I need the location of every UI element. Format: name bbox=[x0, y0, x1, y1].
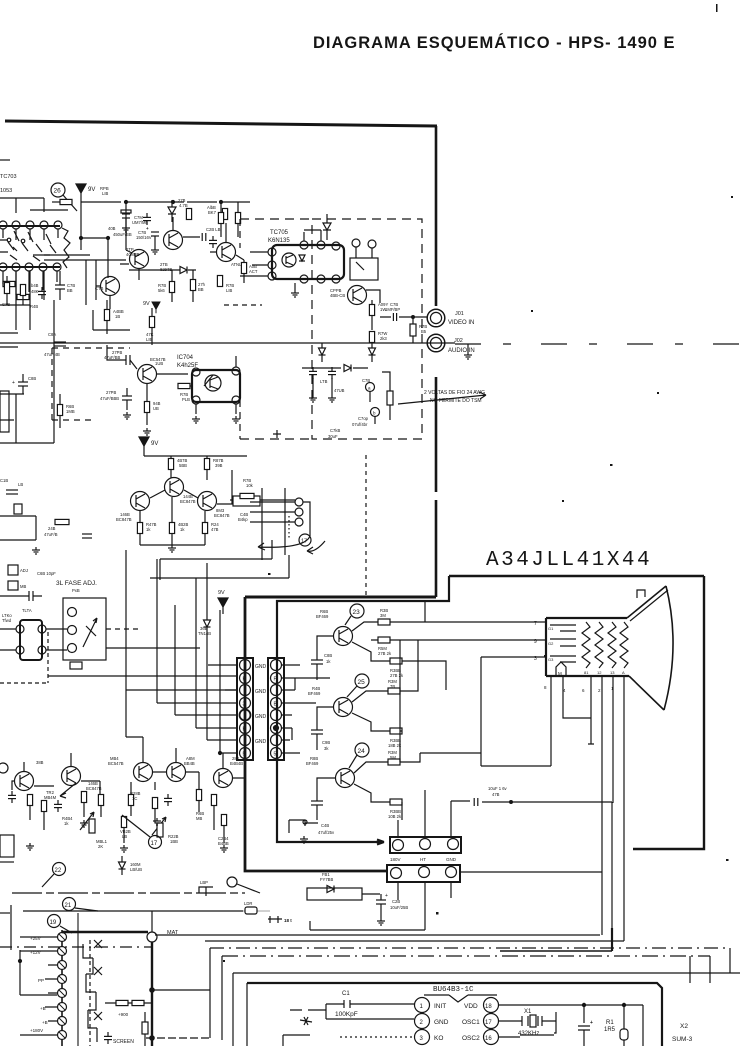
svg-text:C1: C1 bbox=[342, 991, 350, 997]
svg-text:B5: B5 bbox=[421, 329, 427, 334]
svg-text:C8B: C8B bbox=[28, 376, 36, 381]
svg-text:BC547B: BC547B bbox=[150, 357, 166, 362]
svg-text:C7kB: C7kB bbox=[330, 428, 340, 433]
svg-text:GND: GND bbox=[255, 714, 267, 720]
svg-text:38B: 38B bbox=[36, 760, 44, 765]
svg-text:SCREEN: SCREEN bbox=[113, 1039, 134, 1045]
svg-text:27B 2k: 27B 2k bbox=[378, 651, 392, 656]
svg-text:1C: 1C bbox=[132, 796, 137, 801]
svg-text:PxB: PxB bbox=[72, 588, 80, 593]
svg-text:2: 2 bbox=[420, 1020, 424, 1026]
svg-text:16: 16 bbox=[485, 1036, 492, 1042]
svg-text:48K: 48K bbox=[31, 289, 39, 294]
svg-text:1k: 1k bbox=[326, 659, 331, 664]
svg-text:IC704: IC704 bbox=[177, 355, 194, 361]
svg-text:PP: PP bbox=[38, 978, 44, 983]
svg-text:OSC2: OSC2 bbox=[462, 1035, 480, 1042]
svg-text:9V: 9V bbox=[143, 301, 150, 307]
svg-text:07uf/4br: 07uf/4br bbox=[352, 422, 368, 427]
svg-text:2K: 2K bbox=[98, 844, 103, 849]
svg-text:OSC1: OSC1 bbox=[462, 1019, 480, 1026]
svg-text:7B: 7B bbox=[390, 684, 395, 689]
svg-text:ADJ: ADJ bbox=[20, 568, 28, 573]
svg-text:GND: GND bbox=[446, 857, 457, 862]
svg-text:10k: 10k bbox=[246, 483, 254, 488]
svg-text:BF469: BF469 bbox=[316, 614, 329, 619]
svg-text:+B: +B bbox=[42, 1020, 48, 1025]
svg-text:BK7: BK7 bbox=[208, 210, 217, 215]
svg-text:24B: 24B bbox=[48, 526, 56, 531]
svg-text:1R5: 1R5 bbox=[604, 1027, 616, 1033]
svg-text:MAT: MAT bbox=[167, 930, 179, 936]
svg-text:G1: G1 bbox=[548, 626, 554, 631]
svg-text:BC547B: BC547B bbox=[108, 761, 124, 766]
svg-text:X2: X2 bbox=[680, 1023, 688, 1030]
svg-text:K6N135: K6N135 bbox=[268, 238, 290, 244]
svg-text:3: 3 bbox=[420, 1036, 424, 1042]
svg-text:AUDIO IN: AUDIO IN bbox=[448, 348, 475, 354]
svg-text:47uF/B: 47uF/B bbox=[44, 532, 58, 537]
svg-text:17: 17 bbox=[485, 1020, 492, 1026]
svg-text:30uF: 30uF bbox=[328, 434, 338, 439]
svg-text:ACT: ACT bbox=[249, 269, 258, 274]
svg-text:150/16V: 150/16V bbox=[136, 235, 152, 240]
svg-text:1MB: 1MB bbox=[66, 409, 75, 414]
svg-text:UM7/Mh: UM7/Mh bbox=[132, 220, 148, 225]
svg-text:GND: GND bbox=[434, 1019, 449, 1026]
svg-text:NO FERMITE DO TSM: NO FERMITE DO TSM bbox=[430, 398, 482, 404]
svg-text:C7B: C7B bbox=[362, 378, 370, 383]
svg-text:b: b bbox=[373, 411, 376, 416]
svg-text:1k: 1k bbox=[180, 527, 185, 532]
svg-text:UB: UB bbox=[153, 406, 159, 411]
svg-text:13: 13 bbox=[610, 670, 615, 675]
svg-text:VIDEO IN: VIDEO IN bbox=[448, 320, 474, 326]
svg-text:27PB: 27PB bbox=[106, 390, 116, 395]
svg-text:9V: 9V bbox=[218, 590, 225, 596]
svg-text:5M: 5M bbox=[390, 755, 396, 760]
svg-text:LB: LB bbox=[122, 834, 127, 839]
svg-text:1BB: 1BB bbox=[170, 839, 178, 844]
svg-text:KO: KO bbox=[434, 1035, 443, 1042]
svg-text:A34JLL41X44: A34JLL41X44 bbox=[486, 549, 652, 572]
svg-text:18: 18 bbox=[485, 1004, 492, 1010]
svg-text:A: A bbox=[622, 670, 625, 675]
svg-text:25: 25 bbox=[358, 679, 366, 686]
svg-text:BC847B: BC847B bbox=[214, 513, 230, 518]
svg-text:B4B4B: B4B4B bbox=[230, 761, 243, 766]
svg-text:1MF/BP: 1MF/BP bbox=[385, 307, 400, 312]
svg-text:Tfwd: Tfwd bbox=[2, 618, 12, 623]
svg-text:LTB: LTB bbox=[320, 379, 328, 384]
svg-text:3k: 3k bbox=[324, 746, 329, 751]
svg-text:+: + bbox=[146, 226, 149, 231]
svg-text:12: 12 bbox=[597, 670, 602, 675]
svg-text:450uF/BB: 450uF/BB bbox=[113, 232, 132, 237]
svg-text:INIT: INIT bbox=[434, 1003, 446, 1010]
svg-text:LB/UB: LB/UB bbox=[130, 867, 142, 872]
svg-text:9V: 9V bbox=[88, 187, 95, 193]
svg-text:1: 1 bbox=[420, 1004, 424, 1010]
svg-text:C8A: C8A bbox=[48, 332, 56, 337]
svg-text:C2B: C2B bbox=[392, 899, 400, 904]
svg-text:27B 2k: 27B 2k bbox=[390, 673, 404, 678]
svg-text:GND: GND bbox=[255, 689, 267, 695]
svg-text:5: 5 bbox=[243, 752, 246, 758]
svg-text:G3: G3 bbox=[548, 657, 554, 662]
svg-text:TC705: TC705 bbox=[270, 230, 289, 236]
svg-text:1053: 1053 bbox=[0, 188, 12, 194]
svg-text:+180V: +180V bbox=[30, 1028, 43, 1033]
svg-text:10uF 1 6v: 10uF 1 6v bbox=[488, 786, 508, 791]
svg-text:MB: MB bbox=[20, 584, 26, 589]
svg-text:BB: BB bbox=[67, 288, 73, 293]
svg-text:3: 3 bbox=[243, 702, 246, 708]
svg-text:R: R bbox=[243, 677, 247, 683]
svg-text:BF469: BF469 bbox=[308, 691, 321, 696]
svg-text:J02: J02 bbox=[454, 338, 463, 344]
svg-text:G2: G2 bbox=[548, 641, 554, 646]
svg-text:R1: R1 bbox=[606, 1020, 614, 1026]
svg-text:8: 8 bbox=[544, 685, 547, 690]
svg-text:BC847B: BC847B bbox=[116, 517, 132, 522]
svg-text:BF469: BF469 bbox=[306, 761, 319, 766]
svg-text:3M: 3M bbox=[380, 613, 386, 618]
svg-text:VDD: VDD bbox=[464, 1003, 478, 1010]
svg-text:BC847B: BC847B bbox=[180, 499, 196, 504]
svg-text:47UB: 47UB bbox=[334, 388, 345, 393]
svg-text:17: 17 bbox=[151, 841, 158, 847]
svg-text:2k3: 2k3 bbox=[380, 336, 387, 341]
svg-text:21: 21 bbox=[65, 903, 72, 909]
svg-text:2 VOLTAS DE FIO 24 AWG: 2 VOLTAS DE FIO 24 AWG bbox=[424, 390, 485, 396]
svg-text:MB: MB bbox=[196, 816, 202, 821]
svg-text:6: 6 bbox=[582, 688, 585, 693]
svg-text:DIAGRAMA ESQUEMÁTICO - HPS- 14: DIAGRAMA ESQUEMÁTICO - HPS- 1490 E bbox=[313, 33, 676, 52]
svg-text:LIB: LIB bbox=[102, 191, 108, 196]
svg-text:40B: 40B bbox=[108, 226, 116, 231]
svg-text:47uF/BBB: 47uF/BBB bbox=[100, 396, 119, 401]
svg-text:b4B: b4B bbox=[31, 283, 39, 288]
svg-text:TLTA: TLTA bbox=[22, 608, 32, 613]
svg-text:1k: 1k bbox=[146, 527, 151, 532]
svg-text:18 t: 18 t bbox=[284, 918, 292, 923]
svg-text:HT: HT bbox=[420, 857, 426, 862]
svg-text:ATNL: ATNL bbox=[231, 262, 242, 267]
svg-text:TC703: TC703 bbox=[0, 174, 17, 180]
svg-text:23: 23 bbox=[353, 609, 361, 616]
svg-text:829TB: 829TB bbox=[160, 267, 173, 272]
svg-text:39B: 39B bbox=[215, 463, 223, 468]
svg-text:2: 2 bbox=[598, 688, 601, 693]
svg-text:J01: J01 bbox=[455, 311, 464, 317]
svg-text:26: 26 bbox=[54, 188, 62, 195]
svg-text:180V: 180V bbox=[390, 857, 401, 862]
svg-text:LBP: LBP bbox=[200, 880, 208, 885]
svg-text:4.7B: 4.7B bbox=[179, 203, 188, 208]
svg-text:+B: +B bbox=[40, 1006, 46, 1011]
svg-text:5BB: 5BB bbox=[179, 463, 187, 468]
svg-text:TN14B: TN14B bbox=[198, 631, 211, 636]
svg-text:10uF/25B: 10uF/25B bbox=[390, 905, 408, 910]
svg-text:+: + bbox=[385, 893, 388, 899]
svg-text:BU64B3-1C: BU64B3-1C bbox=[433, 986, 474, 994]
svg-text:B4kp: B4kp bbox=[238, 517, 248, 522]
svg-text:PLB: PLB bbox=[182, 397, 190, 402]
svg-text:81: 81 bbox=[584, 670, 589, 675]
svg-text:10B 2k: 10B 2k bbox=[388, 814, 402, 819]
svg-text:5k6: 5k6 bbox=[158, 288, 165, 293]
svg-text:+900: +900 bbox=[118, 1012, 129, 1017]
svg-text:M: M bbox=[558, 671, 562, 676]
svg-text:C7op: C7op bbox=[358, 416, 369, 421]
svg-text:19: 19 bbox=[50, 920, 57, 926]
svg-text:+: + bbox=[12, 380, 15, 386]
svg-text:C4B: C4B bbox=[321, 823, 329, 828]
svg-text:24: 24 bbox=[358, 748, 366, 755]
svg-text:MB4M: MB4M bbox=[44, 795, 57, 800]
svg-text:C2B LB: C2B LB bbox=[206, 227, 221, 232]
svg-text:X1: X1 bbox=[524, 1009, 532, 1015]
svg-text:4C8UB: 4C8UB bbox=[126, 252, 140, 257]
svg-text:LIB: LIB bbox=[226, 288, 232, 293]
svg-text:47B: 47B bbox=[492, 792, 500, 797]
svg-text:a: a bbox=[368, 386, 371, 391]
svg-text:GND: GND bbox=[255, 664, 267, 670]
svg-text:GND: GND bbox=[255, 739, 267, 745]
svg-text:22: 22 bbox=[55, 868, 62, 874]
svg-text:FY7BB: FY7BB bbox=[320, 877, 333, 882]
svg-text:100KpF: 100KpF bbox=[335, 1011, 358, 1018]
svg-text:BB: BB bbox=[198, 287, 204, 292]
svg-text:R4B: R4B bbox=[30, 304, 38, 309]
svg-text:C1B: C1B bbox=[0, 478, 8, 483]
svg-text:4BB-CB: 4BB-CB bbox=[330, 293, 345, 298]
svg-text:LB: LB bbox=[18, 482, 23, 487]
svg-text:C9B: C9B bbox=[322, 740, 330, 745]
svg-text:9V: 9V bbox=[151, 441, 158, 447]
svg-text:47uf/25v: 47uf/25v bbox=[318, 830, 335, 835]
svg-text:SUM-3: SUM-3 bbox=[672, 1036, 693, 1043]
svg-text:1B: 1B bbox=[115, 314, 120, 319]
svg-text:BB4B: BB4B bbox=[184, 761, 195, 766]
svg-text:1k: 1k bbox=[64, 821, 69, 826]
svg-text:LDR: LDR bbox=[244, 901, 252, 906]
svg-text:47B: 47B bbox=[211, 527, 219, 532]
svg-text:C8B: C8B bbox=[324, 653, 332, 658]
svg-text:432KHz: 432KHz bbox=[518, 1031, 539, 1037]
svg-text:+: + bbox=[590, 1020, 593, 1026]
svg-text:3L FASE ADJ.: 3L FASE ADJ. bbox=[56, 580, 97, 587]
svg-text:C6B 10pF: C6B 10pF bbox=[37, 571, 56, 576]
